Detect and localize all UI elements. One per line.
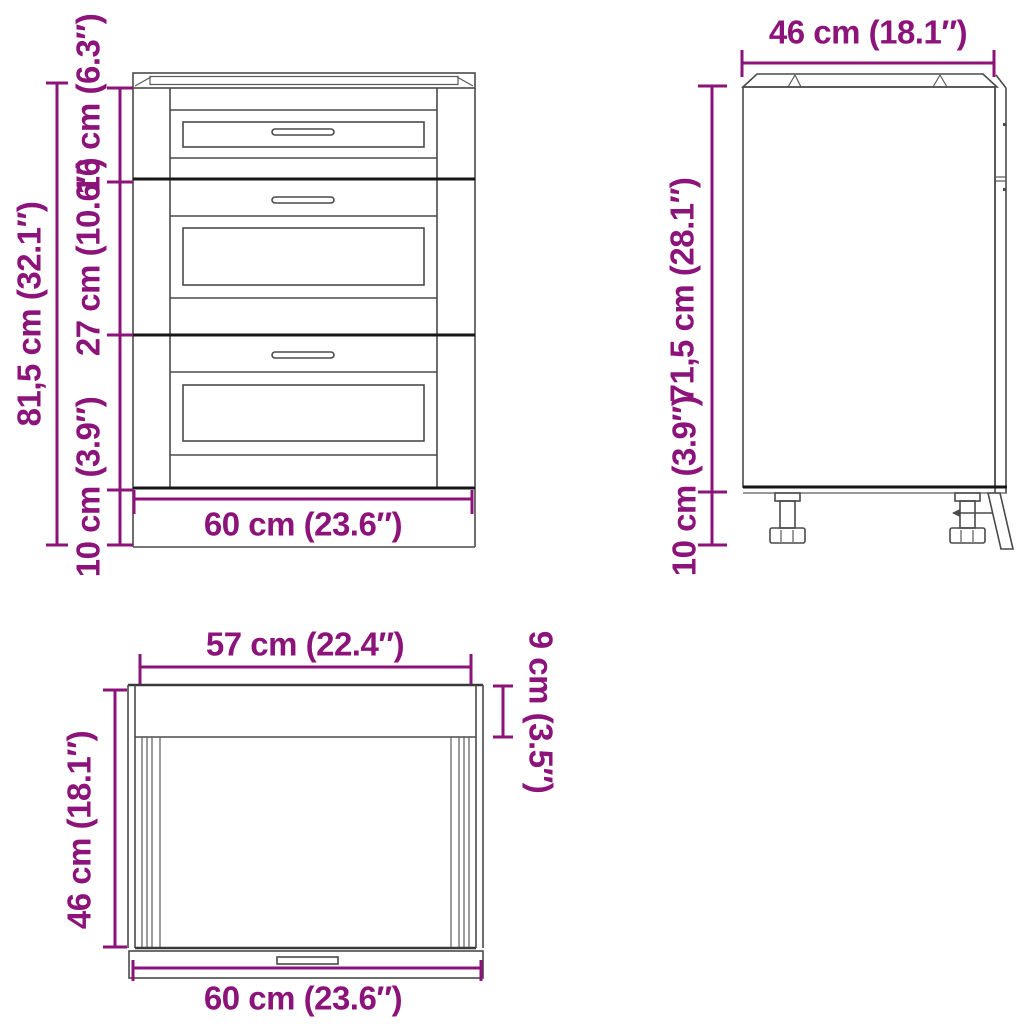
side-panel (743, 87, 995, 487)
dim-top-depth: 46 cm (18.1″) (63, 731, 96, 929)
dim-top-width: 60 cm (23.6″) (204, 982, 402, 1015)
dim-top-inner-width: 57 cm (22.4″) (206, 628, 404, 661)
front-drawer-1 (170, 110, 437, 158)
front-dim-lines (46, 83, 472, 545)
plan-drawer-front (129, 951, 483, 978)
front-top-band (133, 73, 475, 88)
dimension-diagram-page: 81,5 cm (32.1″) 16 cm (6.3″) 27 cm (10.6… (0, 0, 1024, 1024)
technical-drawing (0, 0, 1024, 1024)
dim-side-body-height: 71,5 cm (28.1″) (666, 178, 699, 403)
side-top-seams (788, 75, 947, 87)
side-view-drawing (698, 50, 1013, 549)
side-leg-left (770, 493, 805, 543)
dim-front-middle-drawer-height: 27 cm (10.6″) (72, 158, 105, 356)
dim-front-leg-height: 10 cm (3.9″) (72, 397, 105, 577)
side-top-band (743, 74, 997, 87)
plan-handle (277, 957, 338, 964)
drawer-2-handle (272, 197, 334, 203)
front-view-drawing (46, 73, 475, 547)
dim-side-depth: 46 cm (18.1″) (769, 16, 967, 49)
dim-top-front-rail-depth: 9 cm (3.5″) (525, 631, 558, 794)
front-drawer-2 (170, 197, 437, 298)
side-front-edge (995, 75, 1006, 493)
plinth-clip-bracket (988, 493, 1013, 549)
plan-right-runner (451, 737, 469, 948)
drawer-3-handle (272, 352, 334, 358)
dim-front-total-height: 81,5 cm (32.1″) (13, 202, 46, 427)
dim-side-leg-height: 10 cm (3.9″) (668, 396, 701, 576)
drawer-1-handle (272, 129, 334, 135)
front-drawer-3 (170, 352, 437, 455)
dim-front-width: 60 cm (23.6″) (204, 508, 402, 541)
plan-side-panels (128, 685, 483, 948)
plan-left-runner (142, 737, 160, 948)
side-leg-right (950, 493, 1013, 549)
top-view-drawing (103, 654, 513, 981)
